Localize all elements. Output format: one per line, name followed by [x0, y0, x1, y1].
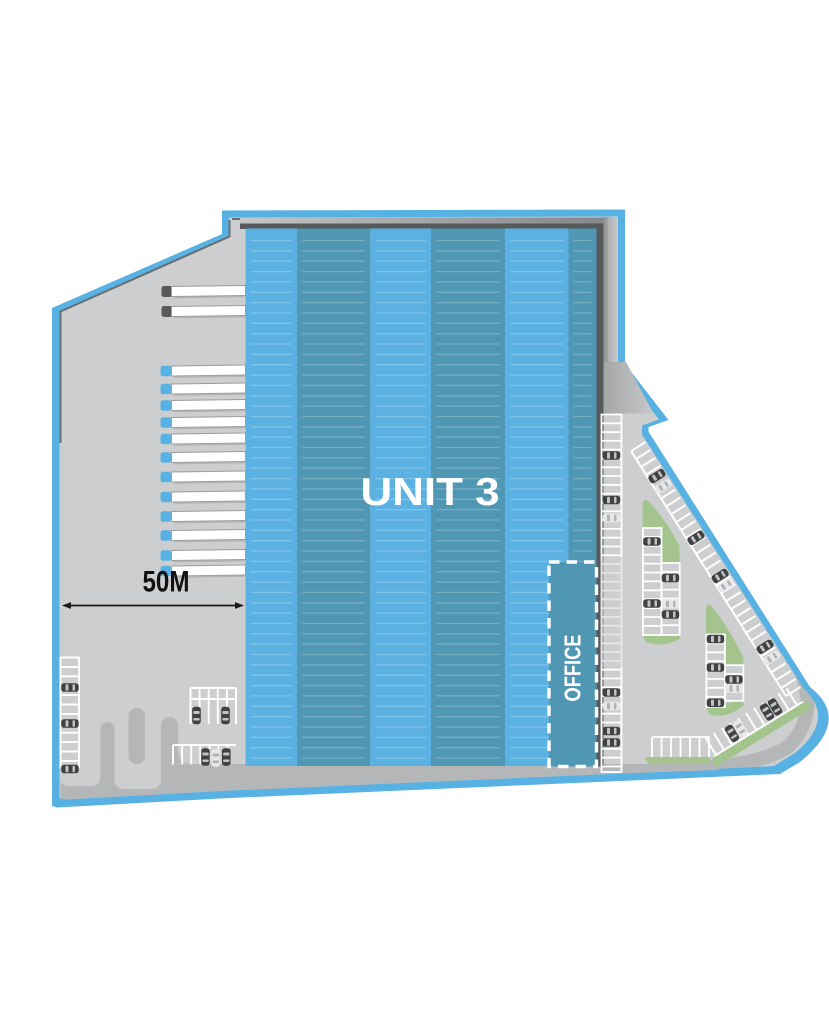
svg-text:OFFICE: OFFICE	[560, 635, 586, 702]
svg-text:50M: 50M	[143, 566, 190, 599]
svg-text:UNIT 3: UNIT 3	[361, 471, 500, 514]
